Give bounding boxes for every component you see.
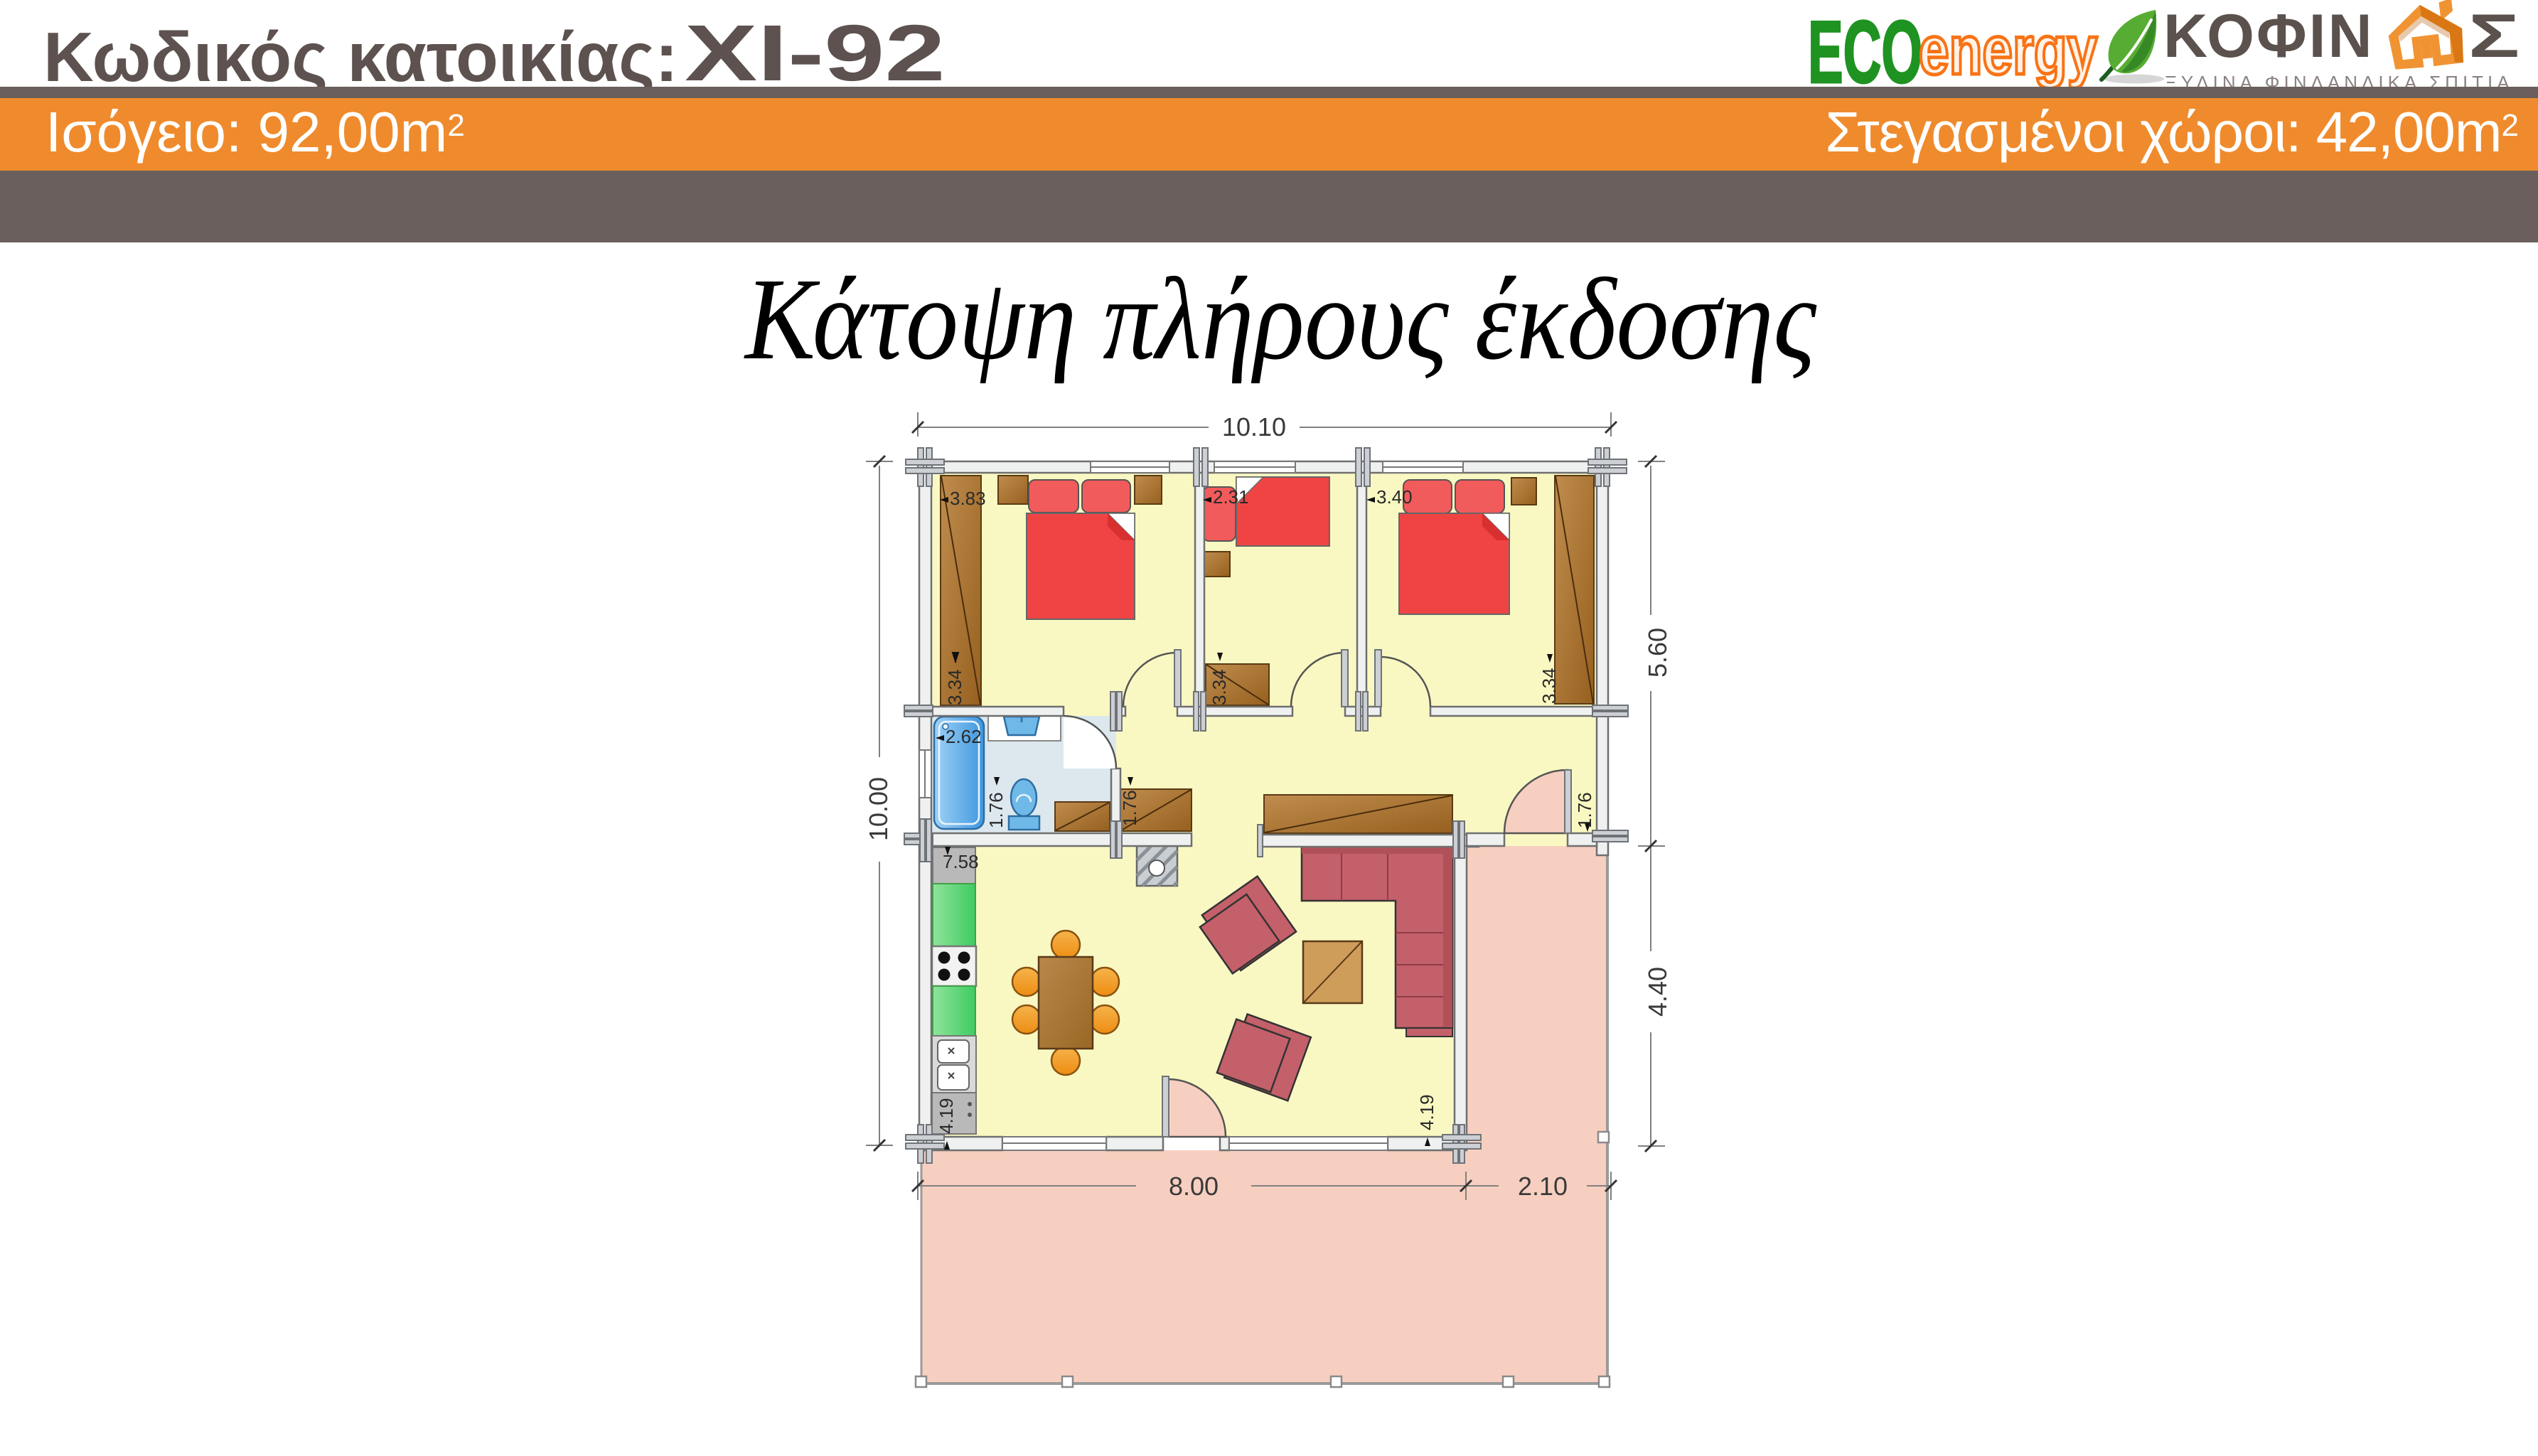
svg-text:5.60: 5.60 [1643,628,1672,678]
svg-text:2.62: 2.62 [946,726,982,747]
svg-text:10.00: 10.00 [864,777,893,841]
svg-text:8.00: 8.00 [1169,1172,1219,1201]
svg-text:1.76: 1.76 [1119,790,1140,826]
svg-text:4.19: 4.19 [936,1098,957,1134]
svg-text:3.83: 3.83 [950,488,986,509]
svg-text:10.10: 10.10 [1222,412,1286,441]
svg-text:1.76: 1.76 [985,792,1007,828]
svg-text:3.40: 3.40 [1376,486,1413,508]
svg-text:3.34: 3.34 [1209,669,1230,705]
svg-text:3.34: 3.34 [1538,668,1560,704]
svg-text:3.34: 3.34 [944,669,965,705]
svg-text:1.76: 1.76 [1574,792,1595,828]
svg-text:7.58: 7.58 [943,851,979,872]
svg-text:2.31: 2.31 [1213,486,1249,508]
svg-text:4.40: 4.40 [1643,967,1672,1017]
svg-text:2.10: 2.10 [1518,1172,1568,1201]
svg-text:4.19: 4.19 [1416,1094,1437,1130]
